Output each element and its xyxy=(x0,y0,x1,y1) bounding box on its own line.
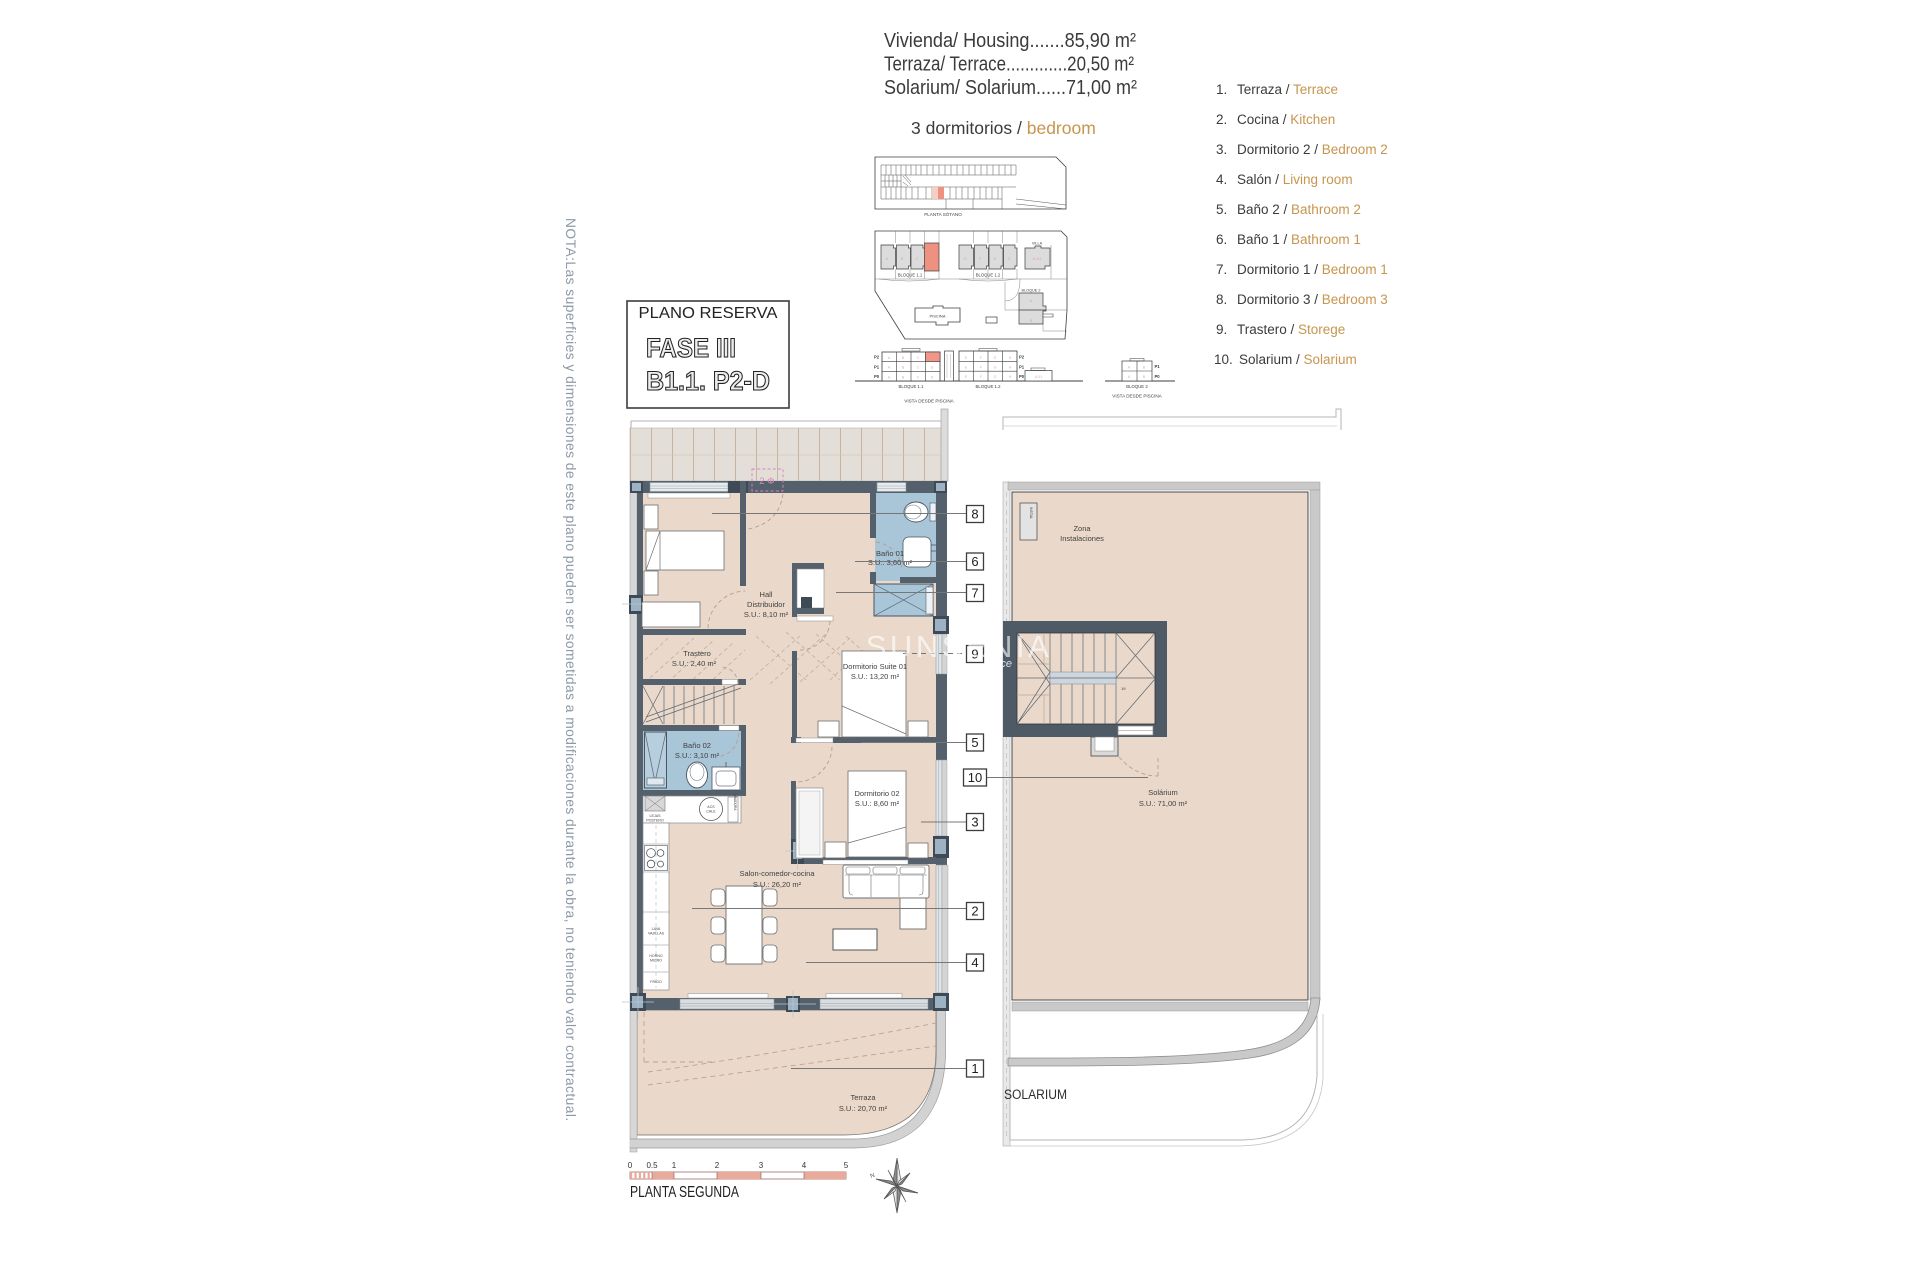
svg-text:Dormitorio 1 / Bedroom 1: Dormitorio 1 / Bedroom 1 xyxy=(1237,262,1388,277)
svg-text:19: 19 xyxy=(1121,686,1126,691)
svg-text:9.: 9. xyxy=(1216,322,1227,337)
svg-text:VAJILLAS: VAJILLAS xyxy=(648,932,665,936)
svg-text:HORNO: HORNO xyxy=(649,954,663,958)
svg-text:Terraza/ Terrace.............2: Terraza/ Terrace.............20,50 m² xyxy=(884,53,1134,76)
svg-text:S.U.: 8,60 m²: S.U.: 8,60 m² xyxy=(855,799,900,808)
svg-text:1: 1 xyxy=(971,1061,978,1076)
svg-text:5: 5 xyxy=(844,1161,849,1170)
svg-text:P2: P2 xyxy=(1019,355,1025,360)
svg-text:P0: P0 xyxy=(1019,374,1025,379)
svg-text:S.U.: 13,20 m²: S.U.: 13,20 m² xyxy=(851,672,900,681)
svg-text:B: B xyxy=(901,256,904,261)
svg-text:4.: 4. xyxy=(1216,172,1227,187)
svg-text:5.: 5. xyxy=(1216,202,1227,217)
svg-text:Instalaciones: Instalaciones xyxy=(1060,534,1104,543)
svg-text:A: A xyxy=(1030,298,1033,303)
svg-text:S.U.: 3,60 m²: S.U.: 3,60 m² xyxy=(868,558,913,567)
svg-text:A-01: A-01 xyxy=(1035,375,1043,379)
svg-text:LAVADORA: LAVADORA xyxy=(733,794,737,812)
svg-text:Solarium / Solarium: Solarium / Solarium xyxy=(1239,352,1357,367)
svg-text:CALE: CALE xyxy=(706,810,716,814)
svg-text:G: G xyxy=(963,256,966,261)
svg-text:P1: P1 xyxy=(1019,364,1025,369)
svg-text:BLOQUE 2: BLOQUE 2 xyxy=(1126,384,1148,389)
svg-text:C: C xyxy=(917,375,920,379)
svg-text:S.U.: 26,20 m²: S.U.: 26,20 m² xyxy=(753,880,802,889)
svg-text:BLOQUE 1.1: BLOQUE 1.1 xyxy=(898,273,923,278)
svg-text:BLOQUE 1.1: BLOQUE 1.1 xyxy=(898,384,924,389)
svg-text:SUNSENIA: SUNSENIA xyxy=(866,629,1052,664)
svg-text:G: G xyxy=(994,366,997,370)
svg-text:ce: ce xyxy=(1000,658,1012,670)
svg-text:7: 7 xyxy=(971,586,978,601)
svg-text:0.5: 0.5 xyxy=(646,1161,658,1170)
svg-text:S.U.: 20,70 m²: S.U.: 20,70 m² xyxy=(839,1104,888,1113)
svg-text:Salon-comedor-cocina: Salon-comedor-cocina xyxy=(739,869,815,878)
svg-text:A: A xyxy=(886,256,889,261)
svg-text:6.: 6. xyxy=(1216,232,1227,247)
svg-text:LAVA: LAVA xyxy=(652,927,661,931)
svg-text:B1.1. P2-D: B1.1. P2-D xyxy=(646,366,770,396)
svg-text:D: D xyxy=(931,375,934,379)
svg-text:C: C xyxy=(917,366,920,370)
svg-text:Vivienda/ Housing.......85,90: Vivienda/ Housing.......85,90 m² xyxy=(884,29,1136,52)
svg-text:Zona: Zona xyxy=(1073,524,1091,533)
svg-text:VILLA: VILLA xyxy=(1032,242,1043,246)
svg-text:S.U.: 2,40 m²: S.U.: 2,40 m² xyxy=(672,659,717,668)
svg-text:E: E xyxy=(994,256,997,261)
svg-text:PISCINA: PISCINA xyxy=(929,314,945,319)
svg-text:G: G xyxy=(994,356,997,360)
svg-text:P0: P0 xyxy=(1155,374,1161,379)
svg-text:Dormitorio 02: Dormitorio 02 xyxy=(854,789,899,798)
svg-text:6: 6 xyxy=(971,554,978,569)
svg-text:POSTERO: POSTERO xyxy=(646,819,664,823)
svg-text:10.: 10. xyxy=(1214,352,1233,367)
svg-text:Baño 01: Baño 01 xyxy=(876,549,904,558)
svg-text:Terraza / Terrace: Terraza / Terrace xyxy=(1237,82,1338,97)
svg-text:0: 0 xyxy=(628,1161,633,1170)
svg-text:3: 3 xyxy=(971,815,978,830)
svg-text:G: G xyxy=(994,375,997,379)
svg-text:Dormitorio 2 / Bedroom 2: Dormitorio 2 / Bedroom 2 xyxy=(1237,142,1388,157)
svg-text:Baño 2 / Bathroom 2: Baño 2 / Bathroom 2 xyxy=(1237,202,1361,217)
svg-text:FASE III: FASE III xyxy=(646,333,736,363)
svg-text:ACS: ACS xyxy=(707,805,715,809)
svg-text:BLOQUE 1.2: BLOQUE 1.2 xyxy=(976,273,1001,278)
svg-text:P1: P1 xyxy=(1155,364,1161,369)
svg-text:BLOQUE 2: BLOQUE 2 xyxy=(1022,289,1041,293)
svg-text:3: 3 xyxy=(759,1161,764,1170)
svg-text:PLANO RESERVA: PLANO RESERVA xyxy=(639,305,779,322)
svg-text:H: H xyxy=(1009,366,1012,370)
svg-text:Salón / Living room: Salón / Living room xyxy=(1237,172,1353,187)
svg-text:2: 2 xyxy=(715,1161,720,1170)
svg-text:1: 1 xyxy=(672,1161,677,1170)
svg-text:8.: 8. xyxy=(1216,292,1227,307)
svg-text:H: H xyxy=(1009,356,1012,360)
svg-text:A-01: A-01 xyxy=(1033,256,1042,261)
svg-text:MICRO: MICRO xyxy=(650,959,662,963)
svg-text:P0: P0 xyxy=(874,374,880,379)
svg-text:Cocina / Kitchen: Cocina / Kitchen xyxy=(1237,112,1335,127)
svg-text:FRIGO: FRIGO xyxy=(650,980,662,984)
svg-text:2: 2 xyxy=(971,904,978,919)
svg-text:P2: P2 xyxy=(874,355,880,360)
svg-text:S.U.: 8,10 m²: S.U.: 8,10 m² xyxy=(744,610,789,619)
svg-text:2.: 2. xyxy=(1216,112,1227,127)
svg-text:VISTA DESDE PISCINA: VISTA DESDE PISCINA xyxy=(1112,394,1162,399)
svg-text:C: C xyxy=(917,356,920,360)
svg-text:5: 5 xyxy=(971,735,978,750)
svg-text:2 Φ: 2 Φ xyxy=(759,476,775,487)
svg-text:Trastero: Trastero xyxy=(683,649,711,658)
svg-text:D: D xyxy=(1008,256,1011,261)
svg-text:Baño 02: Baño 02 xyxy=(683,741,711,750)
svg-text:D: D xyxy=(931,366,934,370)
svg-text:C: C xyxy=(916,256,919,261)
svg-text:Hall: Hall xyxy=(760,590,773,599)
svg-text:PLANTA SEGUNDA: PLANTA SEGUNDA xyxy=(630,1184,740,1201)
svg-text:S.U.: 71,00 m²: S.U.: 71,00 m² xyxy=(1139,799,1188,808)
svg-text:S.U.: 3,10 m²: S.U.: 3,10 m² xyxy=(675,751,720,760)
svg-text:1.: 1. xyxy=(1216,82,1227,97)
svg-text:Distribuidor: Distribuidor xyxy=(747,600,785,609)
svg-text:Trastero / Storege: Trastero / Storege xyxy=(1237,322,1345,337)
svg-text:P1: P1 xyxy=(874,364,880,369)
svg-text:SOLARIUM: SOLARIUM xyxy=(1004,1087,1067,1102)
svg-text:Terraza: Terraza xyxy=(850,1093,876,1102)
svg-text:4: 4 xyxy=(802,1161,807,1170)
svg-text:4: 4 xyxy=(971,955,978,970)
svg-text:BLOQUE 1.2: BLOQUE 1.2 xyxy=(975,384,1001,389)
svg-text:B: B xyxy=(1030,318,1033,323)
svg-text:3.: 3. xyxy=(1216,142,1227,157)
svg-text:Baño 1 / Bathroom 1: Baño 1 / Bathroom 1 xyxy=(1237,232,1361,247)
svg-text:INSTAL: INSTAL xyxy=(1029,507,1033,519)
svg-text:LEJAS: LEJAS xyxy=(650,814,662,818)
svg-text:NOTA:Las superficies y dimensi: NOTA:Las superficies y dimensiones de es… xyxy=(563,218,578,1122)
svg-text:VISTA DESDE PISCINA: VISTA DESDE PISCINA xyxy=(904,399,954,404)
svg-text:H: H xyxy=(1009,375,1012,379)
svg-text:3 dormitorios / bedroom: 3 dormitorios / bedroom xyxy=(911,118,1096,138)
svg-text:PLANTA SÓTANO: PLANTA SÓTANO xyxy=(924,211,962,217)
svg-text:8: 8 xyxy=(971,507,978,522)
svg-text:10: 10 xyxy=(968,770,982,785)
svg-text:Solarium/ Solarium......71,00: Solarium/ Solarium......71,00 m² xyxy=(884,76,1137,99)
svg-text:7.: 7. xyxy=(1216,262,1227,277)
svg-text:Dormitorio 3 / Bedroom 3: Dormitorio 3 / Bedroom 3 xyxy=(1237,292,1388,307)
svg-text:Solárium: Solárium xyxy=(1148,788,1178,797)
